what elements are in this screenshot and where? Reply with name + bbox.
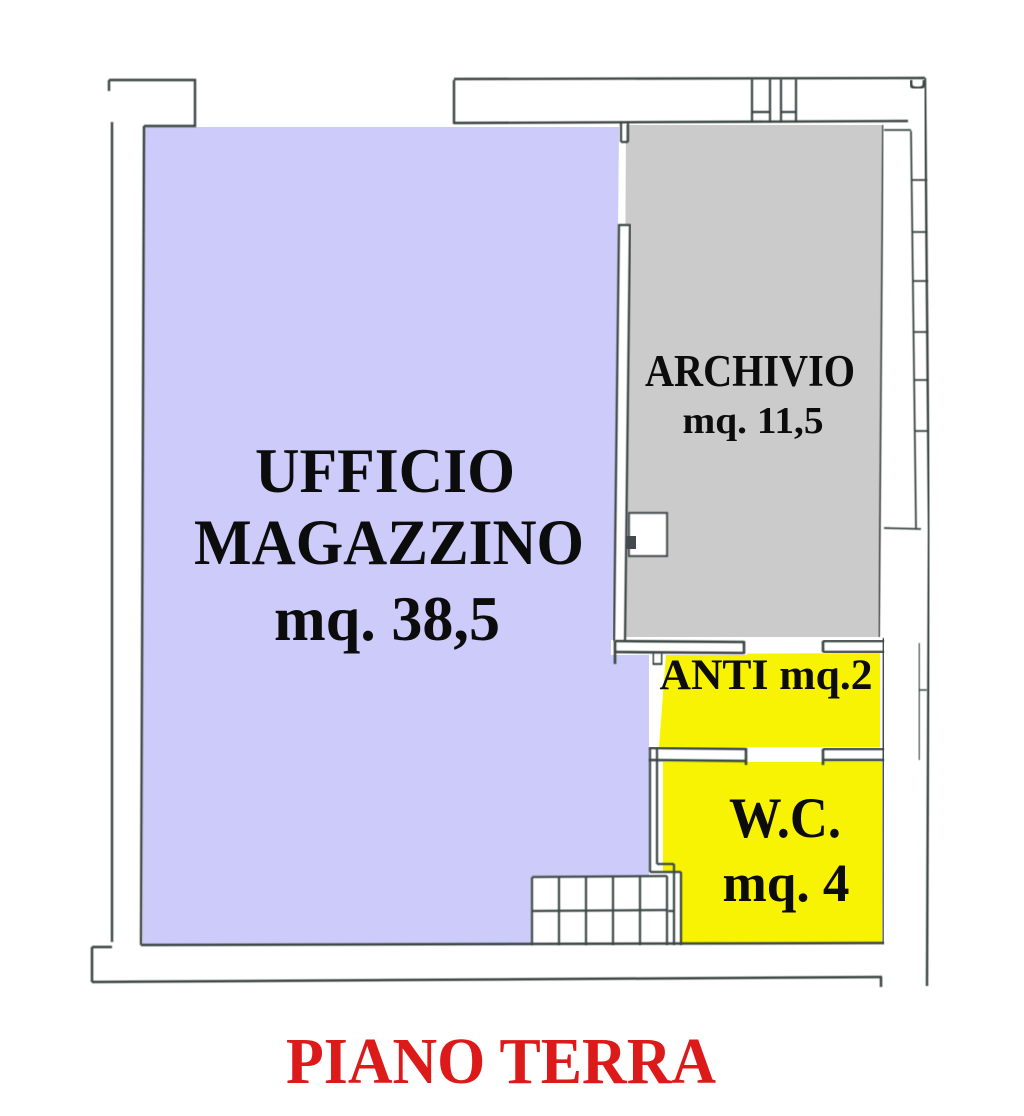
svg-text:ARCHIVIO: ARCHIVIO bbox=[645, 346, 855, 396]
svg-text:mq. 4: mq. 4 bbox=[723, 853, 850, 913]
svg-text:W.C.: W.C. bbox=[729, 787, 841, 850]
svg-text:mq. 38,5: mq. 38,5 bbox=[274, 583, 500, 654]
svg-text:PIANO TERRA: PIANO TERRA bbox=[286, 1025, 716, 1098]
svg-text:mq. 11,5: mq. 11,5 bbox=[683, 400, 824, 442]
svg-text:ANTI mq.2: ANTI mq.2 bbox=[660, 652, 873, 699]
svg-text:MAGAZZINO: MAGAZZINO bbox=[194, 507, 584, 579]
svg-text:UFFICIO: UFFICIO bbox=[255, 435, 515, 506]
